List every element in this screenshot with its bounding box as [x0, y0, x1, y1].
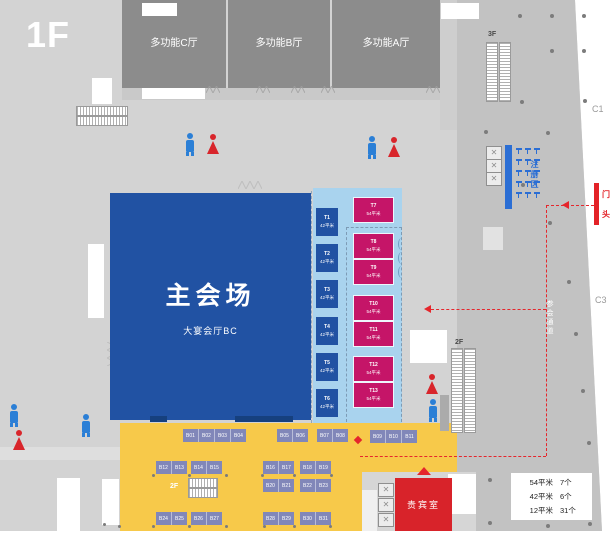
elevator-icon: ✕ — [486, 146, 502, 160]
booth-B13[interactable]: B13 — [172, 461, 187, 474]
entrance-label: 头 — [602, 209, 610, 220]
booth-T12[interactable]: T1254平米 — [354, 357, 393, 381]
venue-door — [235, 416, 293, 422]
booth-T5[interactable]: T542平米 — [316, 353, 338, 381]
male-restroom-icon — [79, 414, 92, 437]
registration-label: 注册区 — [529, 160, 540, 190]
grid-label-c1: C1 — [592, 104, 604, 114]
booth-B07[interactable]: B07 — [317, 429, 333, 442]
booth-B08[interactable]: B08 — [333, 429, 348, 442]
route-arrow-icon — [424, 305, 431, 313]
vip-room-label: 贵宾室 — [407, 498, 440, 511]
female-restroom-icon — [425, 374, 438, 394]
wall-opening — [88, 244, 104, 318]
booth-B25[interactable]: B25 — [172, 512, 187, 525]
booth-B23[interactable]: B23 — [316, 479, 331, 492]
wall-opening — [142, 3, 177, 16]
corridor-label: 参会通道 — [544, 300, 554, 336]
legend-row: 54平米7个 — [511, 477, 592, 488]
booth-group: B20B21 — [263, 479, 294, 492]
booth-B18[interactable]: B18 — [300, 461, 316, 474]
booth-T7[interactable]: T754平米 — [354, 198, 393, 222]
booth-T11[interactable]: T1154平米 — [354, 322, 393, 346]
venue-door — [150, 416, 167, 422]
booth-B11[interactable]: B11 — [402, 430, 417, 443]
entrance-label: 门 — [602, 189, 610, 200]
door-swing-icon — [398, 238, 405, 250]
booth-T3[interactable]: T342平米 — [316, 280, 338, 308]
route-line — [546, 205, 594, 206]
door-swing-icon — [238, 181, 262, 189]
female-restroom-icon — [387, 137, 400, 157]
booth-group: B14B15 — [191, 461, 222, 474]
booth-B15[interactable]: B15 — [207, 461, 222, 474]
pillar — [483, 227, 503, 250]
legend: 54平米7个 42平米6个 12平米31个 — [511, 473, 592, 520]
booth-T8[interactable]: T854平米 — [354, 234, 393, 258]
booth-B20[interactable]: B20 — [263, 479, 279, 492]
elevator-icon: ✕ — [486, 172, 502, 186]
door-swing-icon — [398, 266, 405, 278]
wall-opening — [92, 78, 112, 104]
elevator-icon: ✕ — [378, 483, 394, 497]
booth-B02[interactable]: B02 — [199, 429, 215, 442]
booth-B04[interactable]: B04 — [231, 429, 246, 442]
service-room — [448, 474, 476, 514]
vip-room[interactable]: 贵宾室 — [395, 478, 452, 531]
hall-a-label: 多功能A厅 — [363, 34, 410, 49]
escalator-label: 2F — [170, 483, 178, 490]
registration-counter[interactable] — [505, 145, 512, 209]
escalator-label: 2F — [455, 339, 463, 346]
main-venue-subtitle: 大宴会厅BC — [183, 324, 238, 337]
service-room — [57, 478, 80, 532]
stairs-icon — [76, 116, 128, 126]
booth-T4[interactable]: T442平米 — [316, 317, 338, 345]
escalator-icon — [188, 478, 218, 488]
booth-group: B12B13 — [156, 461, 187, 474]
booth-B19[interactable]: B19 — [316, 461, 331, 474]
booth-B28[interactable]: B28 — [263, 512, 279, 525]
female-restroom-icon — [206, 134, 219, 154]
booth-B31[interactable]: B31 — [316, 512, 331, 525]
elevator-icon: ✕ — [486, 159, 502, 173]
escalator-icon — [499, 42, 511, 102]
corridor-opening — [142, 88, 205, 99]
elevator-icon: ✕ — [378, 513, 394, 527]
door-swing-icon — [291, 86, 305, 93]
service-room — [362, 490, 377, 531]
legend-row: 12平米31个 — [511, 505, 592, 516]
wall-opening — [410, 330, 447, 363]
booth-B16[interactable]: B16 — [263, 461, 279, 474]
grid-label-c3: C3 — [595, 295, 607, 305]
escalator-icon — [188, 488, 218, 498]
door-swing-icon — [321, 86, 335, 93]
service-room — [102, 479, 119, 525]
venue-wall-dashed — [311, 191, 312, 423]
escalator-icon — [486, 42, 498, 102]
hall-c-label: 多功能C厅 — [150, 34, 197, 49]
floor-level-label: 1F — [26, 14, 70, 56]
booth-T10[interactable]: T1054平米 — [354, 296, 393, 320]
booth-B06[interactable]: B06 — [293, 429, 308, 442]
booth-group: B01B02B03B04 — [183, 429, 246, 442]
door-swing-icon — [206, 86, 220, 93]
door-swing-icon — [256, 86, 270, 93]
booth-group: B30B31 — [300, 512, 331, 525]
booth-T1[interactable]: T142平米 — [316, 208, 338, 236]
route-line — [431, 309, 546, 310]
booth-B22[interactable]: B22 — [300, 479, 316, 492]
booth-B05[interactable]: B05 — [277, 429, 293, 442]
male-restroom-icon — [365, 136, 378, 159]
booth-group: B18B19 — [300, 461, 331, 474]
door-swing-icon — [426, 86, 440, 93]
booth-B03[interactable]: B03 — [215, 429, 231, 442]
corridor-strip — [440, 0, 457, 130]
booth-group: B09B10B11 — [370, 430, 417, 443]
booth-B14[interactable]: B14 — [191, 461, 207, 474]
booth-group: B16B17 — [263, 461, 294, 474]
booth-B27[interactable]: B27 — [207, 512, 222, 525]
booth-group: B07B08 — [317, 429, 348, 442]
route-line — [360, 456, 546, 457]
booth-B12[interactable]: B12 — [156, 461, 172, 474]
booth-B17[interactable]: B17 — [279, 461, 294, 474]
wall-opening — [441, 3, 479, 19]
hall-multifunction-b[interactable]: 多功能B厅 — [228, 0, 330, 88]
male-restroom-icon — [183, 133, 196, 156]
escalator-icon — [451, 348, 463, 433]
hall-multifunction-a[interactable]: 多功能A厅 — [332, 0, 440, 88]
booth-B29[interactable]: B29 — [279, 512, 294, 525]
entrance-door — [594, 183, 599, 225]
booth-group: B28B29 — [263, 512, 294, 525]
stairs-icon — [76, 106, 128, 116]
male-restroom-icon — [426, 399, 439, 422]
pillar — [440, 395, 449, 431]
route-arrow-icon — [562, 201, 569, 209]
floor-plan: 多功能C厅 多功能B厅 多功能A厅 1F 主会场 大宴会厅BC T142 — [0, 0, 611, 534]
escalator-label: 3F — [488, 31, 496, 38]
main-venue-hall[interactable]: 主会场 大宴会厅BC — [110, 193, 311, 420]
elevator-icon: ✕ — [378, 498, 394, 512]
booth-T2[interactable]: T242平米 — [316, 244, 338, 272]
booth-B01[interactable]: B01 — [183, 429, 199, 442]
booth-group: B26B27 — [191, 512, 222, 525]
main-venue-title: 主会场 — [165, 276, 255, 312]
booth-B30[interactable]: B30 — [300, 512, 316, 525]
male-restroom-icon — [7, 404, 20, 427]
booth-B09[interactable]: B09 — [370, 430, 386, 443]
booth-T13[interactable]: T1354平米 — [354, 383, 393, 407]
booth-B24[interactable]: B24 — [156, 512, 172, 525]
legend-row: 42平米6个 — [511, 491, 592, 502]
booth-T6[interactable]: T642平米 — [316, 389, 338, 417]
female-restroom-icon — [12, 430, 25, 450]
escalator-icon — [464, 348, 476, 433]
booth-group: B22B23 — [300, 479, 331, 492]
booth-group: B05B06 — [277, 429, 308, 442]
booth-B21[interactable]: B21 — [279, 479, 294, 492]
booth-B26[interactable]: B26 — [191, 512, 207, 525]
booth-T9[interactable]: T954平米 — [354, 260, 393, 284]
route-arrow-icon — [417, 467, 431, 475]
booth-B10[interactable]: B10 — [386, 430, 402, 443]
booth-group: B24B25 — [156, 512, 187, 525]
door-swing-icon — [398, 252, 405, 264]
hall-b-label: 多功能B厅 — [256, 34, 303, 49]
